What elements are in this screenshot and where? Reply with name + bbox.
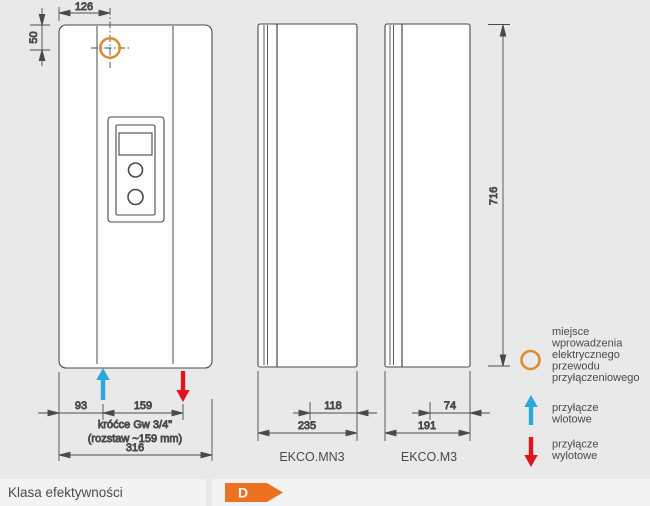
- inlet-arrow-icon: [96, 368, 109, 400]
- side-view-mn3: [258, 24, 357, 367]
- legend-electrical-text: miejsce wprowadzenia elektrycznego przew…: [551, 326, 639, 384]
- dim-316: 316: [126, 442, 144, 454]
- dim-716: 716: [488, 187, 500, 205]
- energy-class-arrow-shape: [225, 483, 283, 502]
- svg-text:wprowadzenia: wprowadzenia: [551, 338, 623, 350]
- svg-text:przewodu: przewodu: [552, 361, 600, 373]
- energy-class-tag: D: [225, 483, 283, 502]
- note-gw: króćce Gw 3/4": [98, 419, 172, 431]
- dim-74: 74: [444, 400, 456, 412]
- legend-outlet-text: przyłącze wylotowe: [551, 439, 598, 463]
- svg-text:wlotowe: wlotowe: [551, 414, 592, 426]
- legend-outlet-arrow-icon: [524, 437, 537, 467]
- legend: miejsce wprowadzenia elektrycznego przew…: [522, 326, 640, 467]
- dim-159: 159: [134, 400, 152, 412]
- side-view-mn3-dimensions: 118 235 EKCO.MN3: [258, 371, 377, 464]
- dimension-drawing-page: Klasa efektywności energetycznej 126: [0, 0, 650, 506]
- dim-50: 50: [28, 31, 40, 43]
- front-view: [59, 8, 212, 368]
- side-view-m3-body: [385, 24, 470, 367]
- side-view-m3-dimensions: 74 191 EKCO.M3: [385, 371, 490, 464]
- dim-235: 235: [298, 420, 316, 432]
- model-label-mn3: EKCO.MN3: [279, 450, 344, 464]
- height-dimension: 716: [488, 25, 510, 367]
- dim-93: 93: [75, 400, 87, 412]
- side-view-m3: [385, 24, 470, 367]
- dim-191: 191: [418, 420, 436, 432]
- svg-text:przyłącze: przyłącze: [552, 439, 598, 451]
- outlet-arrow-icon: [176, 371, 189, 402]
- legend-gland-ring-icon: [522, 351, 540, 369]
- svg-text:elektrycznego: elektrycznego: [552, 349, 620, 361]
- svg-text:przyłączeniowego: przyłączeniowego: [552, 372, 639, 384]
- energy-class-letter: D: [238, 485, 248, 501]
- svg-text:miejsce: miejsce: [552, 326, 589, 338]
- dim-126: 126: [75, 1, 93, 13]
- dim-118: 118: [324, 400, 342, 412]
- svg-text:wylotowe: wylotowe: [551, 450, 597, 462]
- legend-inlet-arrow-icon: [524, 395, 537, 425]
- technical-drawing-canvas: 126 50: [0, 0, 650, 506]
- connection-arrows: [96, 368, 189, 402]
- model-label-m3: EKCO.M3: [401, 450, 457, 464]
- front-view-bottom-dimensions: 93 159 króćce Gw 3/4" (rozstaw ~159 mm) …: [38, 372, 212, 461]
- side-view-mn3-body: [258, 24, 357, 367]
- legend-inlet-text: przyłącze wlotowe: [551, 402, 598, 426]
- svg-text:przyłącze: przyłącze: [552, 402, 598, 414]
